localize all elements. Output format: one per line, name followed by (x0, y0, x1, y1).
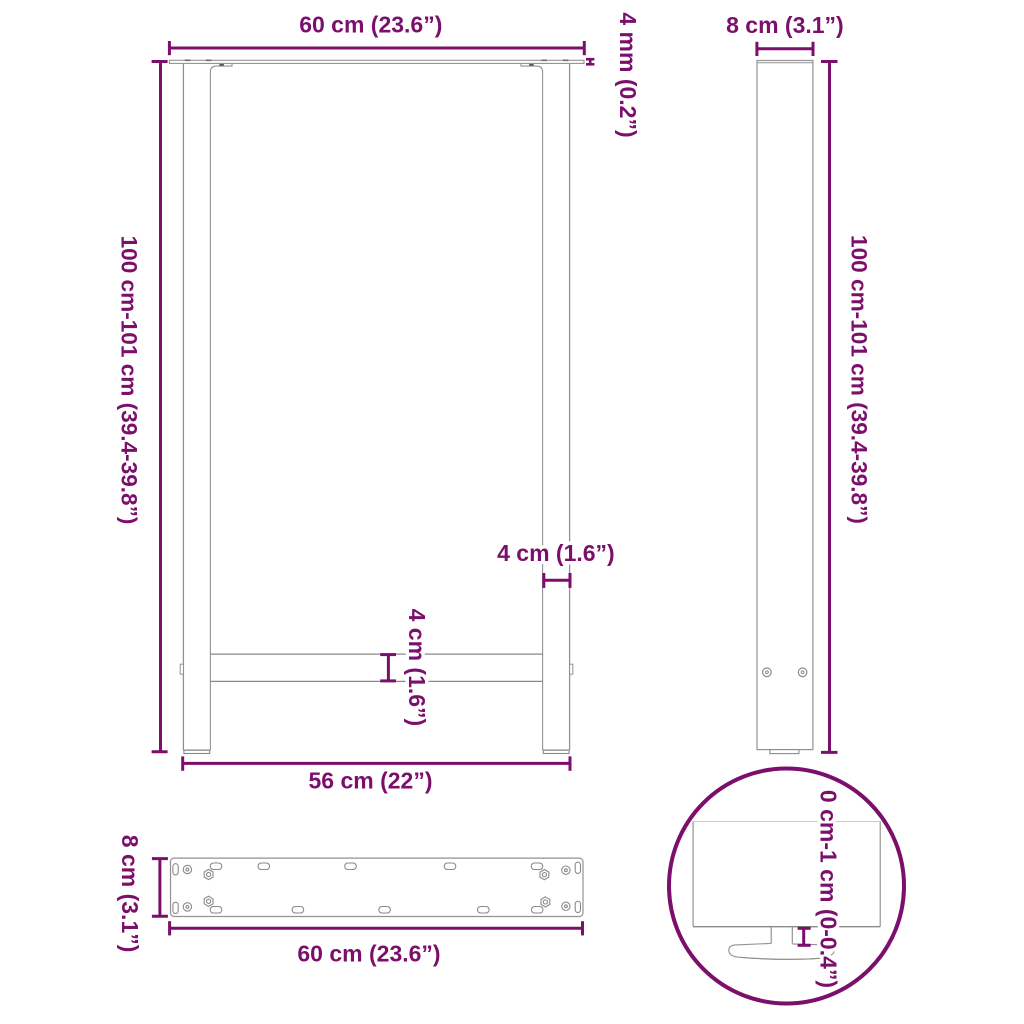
svg-text:4 cm (1.6”): 4 cm (1.6”) (404, 609, 430, 727)
svg-text:4 cm (1.6”): 4 cm (1.6”) (497, 540, 615, 566)
svg-text:4 mm (0.2”): 4 mm (0.2”) (615, 12, 641, 137)
svg-text:8 cm (3.1”): 8 cm (3.1”) (726, 12, 844, 38)
svg-text:60 cm (23.6”): 60 cm (23.6”) (297, 941, 440, 967)
svg-text:8 cm (3.1”): 8 cm (3.1”) (117, 835, 143, 953)
svg-text:0 cm-1 cm (0-0.4”): 0 cm-1 cm (0-0.4”) (816, 790, 842, 988)
svg-text:100 cm-101 cm (39.4-39.8”): 100 cm-101 cm (39.4-39.8”) (117, 236, 142, 525)
svg-text:56 cm (22”): 56 cm (22”) (308, 768, 432, 794)
svg-text:60 cm (23.6”): 60 cm (23.6”) (299, 12, 442, 38)
svg-text:100 cm-101 cm (39.4-39.8”): 100 cm-101 cm (39.4-39.8”) (847, 235, 872, 524)
